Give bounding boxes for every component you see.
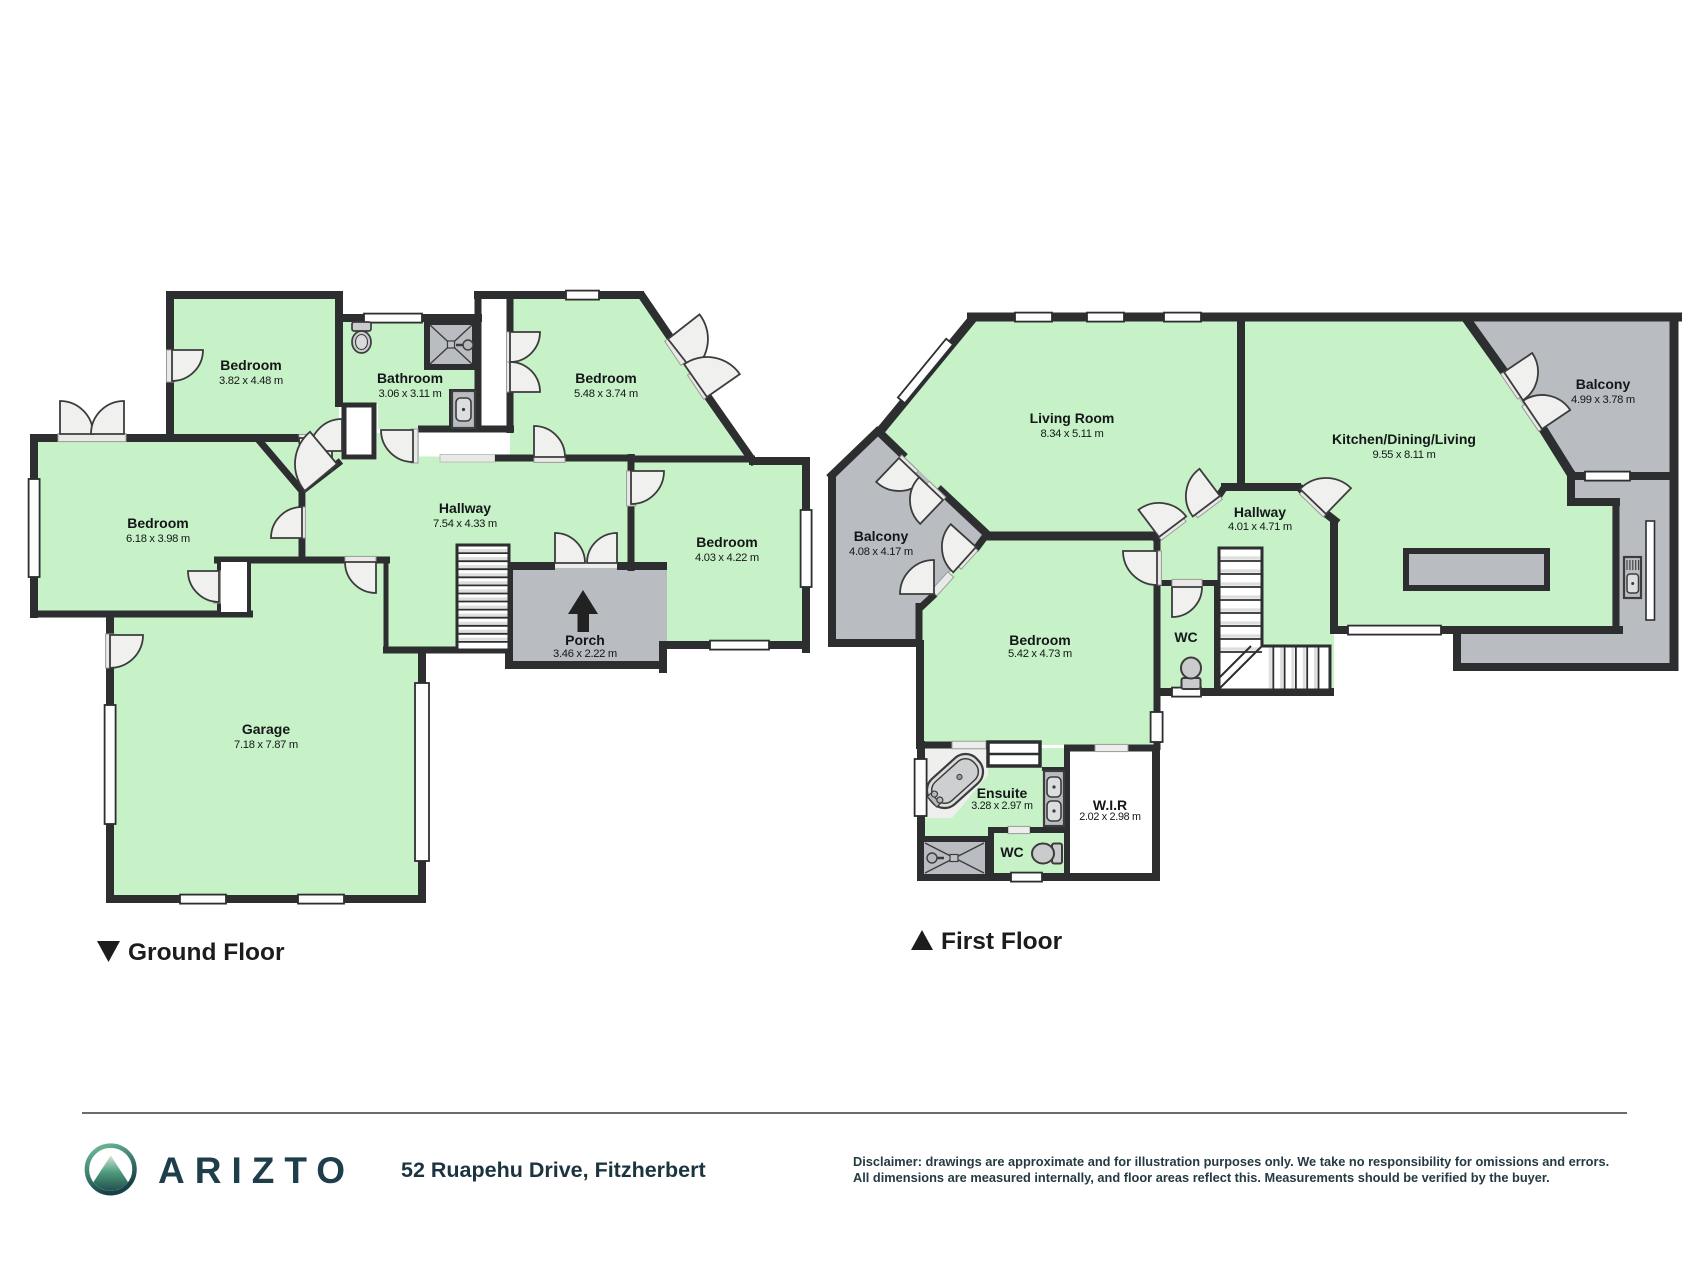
svg-text:4.01 x 4.71 m: 4.01 x 4.71 m [1228, 521, 1292, 533]
svg-text:Disclaimer: drawings are appro: Disclaimer: drawings are approximate and… [853, 1154, 1609, 1169]
svg-text:3.46 x 2.22 m: 3.46 x 2.22 m [553, 648, 617, 660]
svg-text:Bedroom: Bedroom [1009, 632, 1070, 648]
svg-text:Living Room: Living Room [1030, 410, 1115, 426]
svg-text:5.42 x 4.73 m: 5.42 x 4.73 m [1008, 648, 1072, 660]
svg-text:WC: WC [1174, 629, 1197, 645]
svg-text:Bathroom: Bathroom [377, 370, 443, 386]
svg-text:Kitchen/Dining/Living: Kitchen/Dining/Living [1332, 431, 1476, 447]
svg-text:Bedroom: Bedroom [127, 515, 188, 531]
svg-text:All dimensions are measured in: All dimensions are measured internally, … [853, 1170, 1550, 1185]
svg-text:Bedroom: Bedroom [575, 370, 636, 386]
svg-text:Hallway: Hallway [439, 500, 491, 516]
svg-text:Hallway: Hallway [1234, 504, 1286, 520]
svg-text:6.18 x 3.98 m: 6.18 x 3.98 m [126, 533, 190, 545]
svg-text:9.55 x 8.11 m: 9.55 x 8.11 m [1372, 449, 1435, 461]
svg-text:First Floor: First Floor [941, 928, 1063, 955]
svg-text:3.06 x 3.11 m: 3.06 x 3.11 m [378, 388, 441, 400]
svg-text:Ground Floor: Ground Floor [128, 939, 285, 966]
svg-text:ARIZTO: ARIZTO [158, 1150, 355, 1191]
svg-text:Bedroom: Bedroom [696, 534, 757, 550]
svg-text:Balcony: Balcony [1576, 376, 1631, 392]
svg-text:4.08 x 4.17 m: 4.08 x 4.17 m [849, 546, 913, 558]
svg-text:7.18 x 7.87 m: 7.18 x 7.87 m [234, 739, 298, 751]
svg-text:5.48 x 3.74 m: 5.48 x 3.74 m [574, 388, 638, 400]
svg-text:2.02 x 2.98 m: 2.02 x 2.98 m [1079, 811, 1141, 823]
svg-text:WC: WC [1000, 844, 1023, 860]
svg-text:Garage: Garage [242, 721, 290, 737]
svg-text:Ensuite: Ensuite [977, 785, 1028, 801]
svg-text:4.99 x 3.78 m: 4.99 x 3.78 m [1571, 394, 1635, 406]
svg-text:52 Ruapehu Drive, Fitzherbert: 52 Ruapehu Drive, Fitzherbert [401, 1158, 706, 1182]
svg-text:3.82 x 4.48 m: 3.82 x 4.48 m [219, 375, 283, 387]
svg-text:4.03 x 4.22 m: 4.03 x 4.22 m [695, 552, 759, 564]
svg-text:Porch: Porch [565, 632, 605, 648]
svg-text:Bedroom: Bedroom [220, 357, 281, 373]
svg-text:8.34 x 5.11 m: 8.34 x 5.11 m [1040, 428, 1103, 440]
svg-text:Balcony: Balcony [854, 528, 909, 544]
svg-text:7.54 x 4.33 m: 7.54 x 4.33 m [433, 518, 497, 530]
svg-text:3.28 x 2.97 m: 3.28 x 2.97 m [971, 800, 1033, 812]
